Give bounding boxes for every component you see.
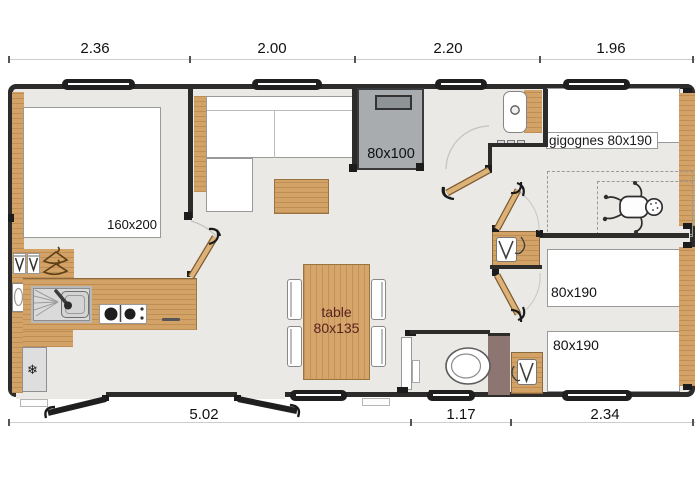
window-icon <box>562 390 632 401</box>
sofa <box>206 96 353 158</box>
entrance-opening-main <box>237 388 285 399</box>
dimension-bottom-2: 1.17 <box>429 406 493 423</box>
single-bed-top-label: 80x190 <box>551 284 597 300</box>
wall-bedroom-divider <box>540 233 689 238</box>
headboard-cap <box>683 242 692 248</box>
window-icon <box>435 79 487 90</box>
sink-basin-inner <box>65 295 85 314</box>
wc-shelf <box>412 360 420 383</box>
vanity-basin <box>496 237 517 262</box>
dimension-bottom-3: 2.34 <box>573 406 637 423</box>
dimension-top-2: 2.00 <box>240 40 304 57</box>
door-track <box>397 387 408 393</box>
entry-door-left <box>45 399 106 418</box>
door-hinge <box>485 165 492 172</box>
floorplan-canvas: 2.36 2.00 2.20 1.96 160x200 ❄ 80x100 <box>0 0 700 500</box>
headboard-cap <box>683 384 692 390</box>
door-hinge <box>492 269 499 276</box>
entry-door-main <box>238 399 299 417</box>
sofa-cushion-line <box>274 110 275 158</box>
dimension-top-4: 1.96 <box>579 40 643 57</box>
door-hinge <box>492 225 499 232</box>
top-dimension-line <box>8 59 695 60</box>
wall-shower-left <box>352 89 357 169</box>
wall-cap <box>8 214 14 222</box>
kitchen-base-unit <box>23 330 73 347</box>
wall-cap <box>349 164 357 172</box>
window-icon <box>62 79 135 90</box>
dim-tick <box>692 419 694 426</box>
fridge-snowflake-icon: ❄ <box>27 362 38 378</box>
entry-step <box>362 398 390 406</box>
wardrobe-shelf <box>13 253 26 274</box>
stove <box>99 304 147 324</box>
dim-tick <box>8 419 10 426</box>
fridge: ❄ <box>22 347 47 392</box>
dining-chair <box>287 279 302 320</box>
headboard-cap <box>683 223 692 229</box>
window-icon <box>427 390 475 401</box>
dining-chair <box>371 326 386 367</box>
dining-chair <box>287 326 302 367</box>
wc-partition <box>488 333 510 395</box>
vanity-basin <box>517 359 537 385</box>
headboard-cap <box>683 88 692 93</box>
dim-tick <box>354 56 356 63</box>
sofa-chaise <box>206 158 253 212</box>
coffee-table <box>274 179 329 214</box>
table-label-line1: table <box>303 304 370 320</box>
dimension-top-1: 2.36 <box>63 40 127 57</box>
door-hinge <box>234 395 241 401</box>
dim-tick <box>8 56 10 63</box>
dim-tick <box>510 419 512 426</box>
sofa-back-line <box>207 110 352 111</box>
single-beds-headboard <box>679 247 695 386</box>
door-hinge <box>187 271 193 277</box>
wall-bathroom-bottom <box>488 143 546 147</box>
wall-bathroom-right <box>543 89 548 147</box>
master-bed-label: 160x200 <box>95 217 157 232</box>
sink-basin <box>61 291 89 318</box>
wall-cap <box>416 163 424 171</box>
dim-tick <box>539 56 541 63</box>
sofa-side-panel <box>194 96 206 192</box>
drawer-handle <box>162 318 180 321</box>
wall-wc-top <box>410 330 490 334</box>
bathroom-washbasin <box>503 91 527 133</box>
window-icon <box>563 79 630 90</box>
entry-step <box>20 399 48 407</box>
table-label-line2: 80x135 <box>303 320 370 336</box>
wardrobe-shelf <box>27 253 40 274</box>
wall-master-living <box>188 89 193 218</box>
window-icon <box>290 390 347 401</box>
dimension-bottom-1: 5.02 <box>172 406 236 423</box>
shower-label: 80x100 <box>363 146 419 162</box>
door-hinge <box>102 395 109 401</box>
dim-tick <box>410 419 412 426</box>
single-bed-bottom-label: 80x190 <box>553 337 599 353</box>
trundle-mattress-outline <box>597 181 693 235</box>
wall-cap <box>184 212 192 220</box>
dim-tick <box>189 56 191 63</box>
shower-head-box <box>375 95 412 110</box>
window-icon <box>252 79 322 90</box>
dining-chair <box>371 279 386 320</box>
gigognes-bed-label: gigognes 80x190 <box>546 132 658 149</box>
dimension-top-3: 2.20 <box>416 40 480 57</box>
dim-tick <box>692 56 694 63</box>
wall-cap <box>536 230 543 237</box>
wc-sliding-door <box>401 337 412 390</box>
